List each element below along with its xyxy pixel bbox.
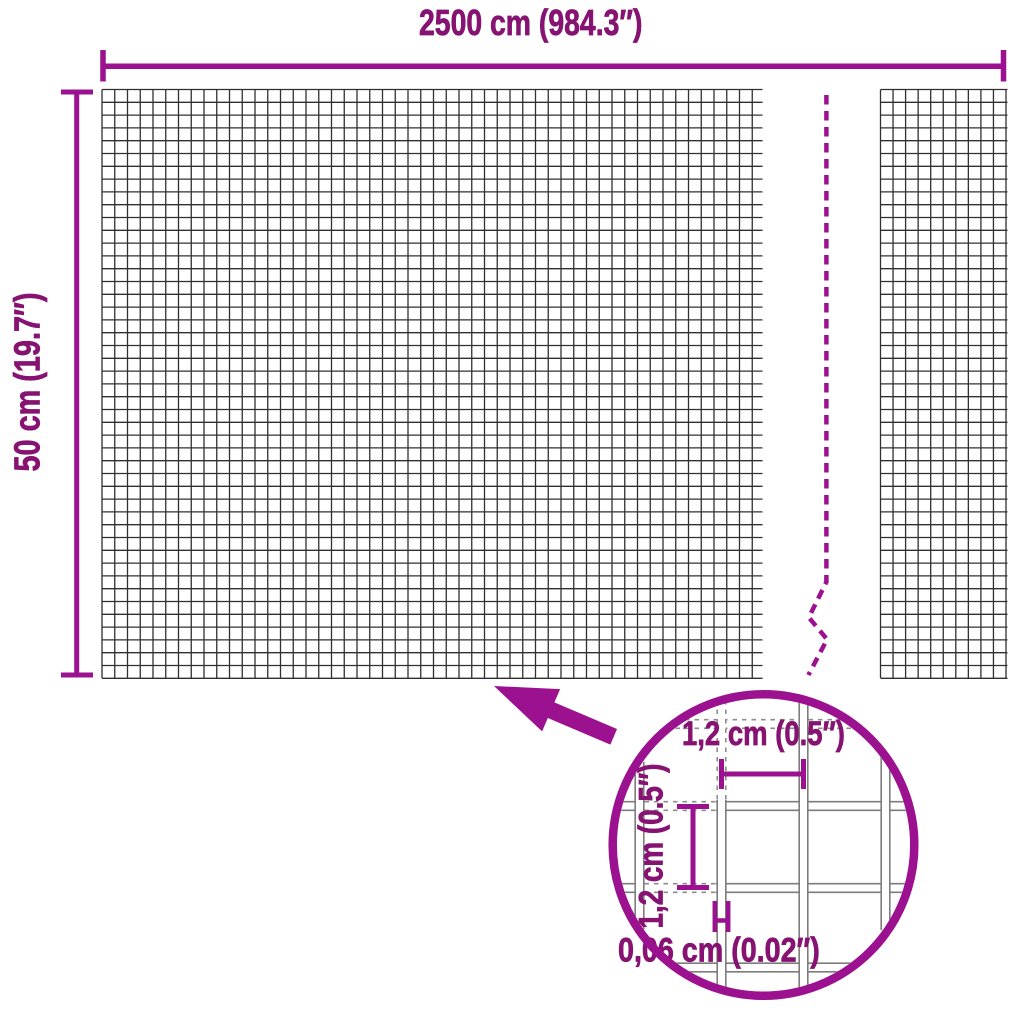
- svg-text:1,2 cm (0.5″): 1,2 cm (0.5″): [682, 714, 845, 752]
- svg-text:50 cm (19.7″): 50 cm (19.7″): [6, 293, 47, 472]
- svg-text:1,2 cm (0.5″): 1,2 cm (0.5″): [632, 764, 670, 929]
- svg-text:2500 cm (984.3″): 2500 cm (984.3″): [419, 3, 642, 43]
